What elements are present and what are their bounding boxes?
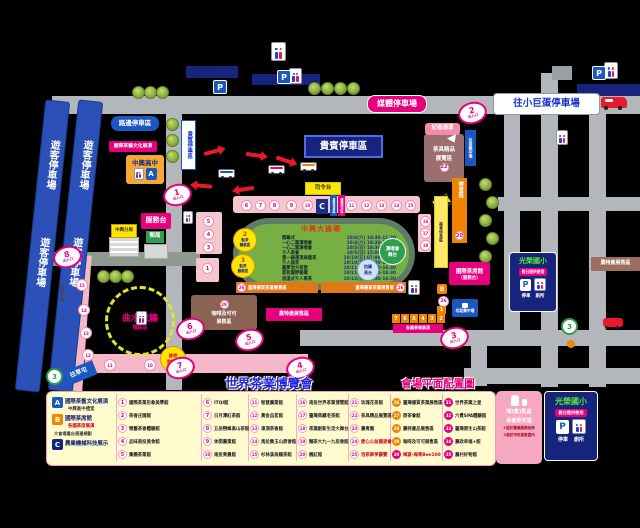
legend-item-16: 16南投世界茶業博覽館 — [298, 396, 349, 409]
legend-item-22: 22茶具精品展覽區 — [350, 409, 392, 422]
legend-abc-line: 農業機械科技展示 — [65, 439, 108, 450]
tree-icon — [156, 86, 169, 99]
tree-icon — [321, 82, 334, 95]
press-lane-label: 記者通道 — [425, 123, 460, 135]
map-subtitle: 會場平面配置圖 — [396, 379, 480, 391]
tree-icon — [334, 82, 347, 95]
legend-column: 21玫瑰花茶館22茶具精品展覽區23農青園24愛心公益園遊會25泡茶師爭霸賽 — [350, 396, 392, 461]
traffic-arrow-icon — [276, 156, 292, 165]
tree-icon — [486, 196, 499, 209]
legend-column: 31世界茶葉之星32六覺SPA體驗館33臺灣原生山茶館34農政幸福+館35農村好… — [444, 396, 486, 461]
legend-item-3: 3懷舊茶香體驗館 — [118, 422, 169, 435]
tea-strip-left: 26 臺灣優質茶葉展售區 — [236, 282, 318, 293]
legend-item-20: 20楓紅館 — [298, 448, 349, 461]
road-marker: 14 — [78, 304, 90, 316]
legend-a-marker: A — [146, 168, 157, 180]
legend-item-21: 21玫瑰花茶館 — [350, 396, 392, 409]
stand-c-badge: C — [316, 199, 328, 214]
toilet-icon — [408, 280, 420, 295]
road-marker: 12 — [82, 349, 94, 361]
police-label: 中興分局 — [111, 224, 137, 238]
vip-rest-tag: 貴賓休息區 — [330, 195, 337, 216]
garbage-sign: 垃圾集中場 — [452, 299, 478, 317]
toilet-icon — [134, 168, 144, 180]
legend-column: 26臺灣優質茶葉展售區27原茶會館28農特產品展售區29咖啡及可可展售區30梅宴… — [392, 396, 443, 461]
toilet-icon — [604, 62, 618, 79]
legend-item-7: 7日月潭紅茶館 — [203, 409, 249, 422]
car-icon — [601, 97, 627, 108]
legend-abc-line: 中興高中禮堂 — [68, 406, 94, 414]
legend-item-13: 13凍頂茶香館 — [250, 422, 296, 435]
tea-house-label: 國際茶席館 （服務台） — [449, 262, 490, 285]
route3-shield: 3 — [561, 318, 578, 335]
booth-3: 3 — [428, 314, 436, 323]
traffic-arrow-icon — [246, 152, 262, 158]
legend-item-6: 6ITQI館 — [203, 396, 249, 409]
booth-6: 6 — [401, 314, 409, 323]
traffic-arrow-icon — [204, 148, 220, 156]
service-desk-label: 服務台 — [141, 213, 171, 229]
legend-item-11: 11智慧農業館 — [250, 396, 296, 409]
to-dome-label: 往小巨蛋停車場 — [493, 93, 600, 115]
booth-5: 5 — [410, 314, 418, 323]
stand-number: 10 — [302, 200, 313, 211]
stand-number: 6 — [241, 200, 252, 211]
police-building — [109, 237, 139, 257]
toilet-icon — [534, 278, 546, 291]
gate-marker-5: 5出入口 — [233, 326, 266, 354]
legend-column: 11智慧農業館12黃金品茗館13凍頂茶香館14馬拉桑玉山原香館15杉林溪烏龍茶館 — [250, 396, 296, 461]
vip-parking-label: 貴賓停車區 — [304, 135, 383, 158]
visitor-parking-label: 遊客停車場 — [76, 139, 91, 190]
map-title: 世界茶業博覽會 — [214, 376, 324, 391]
legend-b-marker: B — [437, 284, 447, 294]
stand-number: 5 — [203, 216, 214, 227]
traffic-arrow-icon — [196, 183, 212, 188]
legend-item-25: 25泡茶師爭霸賽 — [350, 448, 392, 461]
legend-abc-line: 大會場看台周邊規劃 — [54, 430, 92, 438]
legend-column: 16南投世界茶業博覽館17臺灣典藏老茶館18茶葉創新生活大舞台19麵茶大九一九炭… — [298, 396, 349, 461]
tree-icon — [479, 178, 492, 191]
legend-item-23: 23農青園 — [350, 422, 392, 435]
toilet-icon — [556, 130, 568, 145]
visitor-parking-label: 遊客停車場 — [33, 237, 48, 288]
schedule-row: 浪漫式千人奉茶10/12(日) 15:30-16:30 — [282, 277, 396, 282]
toilet-icon — [136, 311, 147, 325]
legend-column: 1國際茶業形象美學館2茶香庄園館3懷舊茶香體驗館4品味南投美食館5集團茶業館 — [118, 396, 169, 461]
road — [552, 66, 572, 80]
legend-item-19: 19麵茶大九一九炭香館 — [298, 435, 349, 448]
stand-number: 4 — [203, 229, 214, 240]
tea-strip-right: 臺灣優質茶葉展售區 26 — [321, 282, 406, 293]
intl-tea-culture-label: 國際茶藝文化展演 — [109, 141, 157, 152]
road-marker: 15 — [76, 279, 88, 291]
road-marker: 11 — [104, 359, 116, 371]
tree-icon — [121, 270, 134, 283]
road — [300, 330, 640, 346]
parking-icon: P — [520, 279, 531, 291]
legend-item-2: 2茶香庄園館 — [118, 409, 169, 422]
legend-item-18: 18茶葉創新生活大舞台 — [298, 422, 349, 435]
tree-icon — [166, 134, 179, 147]
tree-icon — [166, 150, 179, 163]
legend-item-33: 33臺灣原生山茶館 — [444, 422, 486, 435]
traffic-dot — [567, 340, 575, 348]
legend-badge-C: C — [52, 439, 63, 450]
stand-number: 3 — [203, 242, 214, 253]
food-zone-strip: 美食區 20 — [452, 178, 467, 243]
tree-icon — [308, 82, 321, 95]
legend-item-26: 26臺灣優質茶葉展售區 — [392, 396, 443, 409]
stand-number: 16 — [420, 216, 431, 227]
farm-products-bar: 農特產展售區 — [266, 308, 322, 321]
legend-item-8: 8五岳巒峰高山茶館 — [203, 422, 249, 435]
road-marker: 10 — [144, 359, 156, 371]
stand-number: 18 — [420, 240, 431, 251]
shuttle-bus-icon — [268, 165, 285, 174]
farm-products-bar-right: 農特產展售區 — [591, 257, 640, 271]
traffic-arrow-icon — [238, 186, 254, 192]
legend-item-30: 30梅宴·梅青Bee100 — [392, 448, 443, 461]
legend-badge-B: B — [52, 414, 63, 425]
booth-7: 7 — [392, 314, 400, 323]
vip-parking-vertical-label: 貴賓停車區 — [181, 120, 196, 170]
tree-icon — [486, 232, 499, 245]
car-icon — [603, 318, 623, 327]
legend-item-31: 31世界茶葉之星 — [444, 396, 486, 409]
tree-icon — [479, 214, 492, 227]
media-tag: 媒體採訪區 — [338, 195, 345, 216]
media-parking-label: 媒體停車場 — [367, 95, 427, 113]
legend-item-15: 15杉林溪烏龍茶館 — [250, 448, 296, 461]
school-legend-panel: 光榮國小 假日提供使用 P 停車 廁所 — [544, 391, 598, 461]
toilet-icon — [183, 211, 193, 224]
parking-icon: P — [556, 420, 569, 434]
pedestrian-road — [85, 354, 308, 373]
visitor-parking-label: 遊客停車場 — [43, 139, 58, 190]
stand-number: 14 — [391, 200, 402, 211]
stand-number: 17 — [420, 228, 431, 239]
legend-column: 6ITQI館7日月潭紅茶館8五岳巒峰高山茶館9休閒農業館10南投青農館 — [203, 396, 249, 461]
shuttle-bus-icon — [300, 162, 317, 171]
tea-zone-2: 2 點茶 體驗區 — [233, 228, 257, 252]
school-parking-sign: 光榮國小 假日提供使用 P 停車 廁所 — [509, 252, 557, 312]
road-marker: 13 — [80, 327, 92, 339]
road — [498, 197, 640, 211]
tree-icon — [347, 82, 360, 95]
legend-item-1: 1國際茶業形象美學館 — [118, 396, 169, 409]
legend-item-27: 27原茶會館 — [392, 409, 443, 422]
legend-badge-A: A — [52, 397, 63, 408]
nursing-panel: 哺(集)乳室 長者更衣室 ①設於農業服務站旁 ②設於可可展售區內 — [496, 391, 542, 464]
booth-row: 765432 — [392, 314, 445, 323]
stand-number: 8 — [269, 200, 280, 211]
legend-item-4: 4品味南投美食館 — [118, 435, 169, 448]
road — [464, 368, 640, 384]
route3-shield: 3 — [46, 368, 63, 385]
legend-item-10: 10南投青農館 — [203, 448, 249, 461]
shelter — [186, 66, 238, 78]
stadium-schedule: 開幕式10/4(六) 10:30-11:30一心二葉演唱會10/4(六) 18:… — [282, 236, 396, 282]
legend-item-5: 5集團茶業館 — [118, 448, 169, 461]
teaware-exhibit-box: 茶具精品 展覽區 22 — [424, 134, 464, 182]
tree-icon — [166, 118, 179, 131]
photo-tower: 拍攝 高台 — [357, 259, 379, 281]
legend-item-29: 29咖啡及可可展售區 — [392, 435, 443, 448]
legend-item-14: 14馬拉桑玉山原香館 — [250, 435, 296, 448]
legend-item-34: 34農政幸福+館 — [444, 435, 486, 448]
post-office-building — [144, 244, 168, 259]
booth-row-label: 各國茶席展演 — [393, 324, 443, 333]
teaware-number: 22 — [440, 163, 449, 172]
stand-number: 15 — [405, 200, 416, 211]
school-a-box: 中興高中 A — [126, 155, 164, 184]
concert-stage: 演唱會 舞台 — [379, 238, 406, 265]
booth-1: 1 — [437, 306, 446, 314]
command-stage-label: 司令台 — [305, 182, 341, 195]
parking-icon: P — [592, 66, 606, 80]
garbage-vertical-sign: 垃圾集中場 — [465, 130, 476, 166]
booth-2: 2 — [437, 314, 445, 323]
booth-4: 4 — [419, 314, 427, 323]
legend-divider — [296, 394, 297, 461]
toilet-icon — [271, 42, 286, 61]
shuttle-bus-icon — [218, 169, 235, 178]
nursing-icon — [511, 395, 527, 406]
legend-divider — [116, 394, 117, 461]
legend-item-17: 17臺灣典藏老茶館 — [298, 409, 349, 422]
stand-number: 1 — [202, 263, 213, 274]
legend-item-32: 32六覺SPA體驗館 — [444, 409, 486, 422]
roadside-parking-label: 路邊停車區 — [111, 116, 159, 131]
toilet-icon — [572, 419, 586, 434]
tea-zone-3: 3 點茶 體驗區 — [231, 254, 255, 278]
post-office-label: 郵局 — [146, 231, 164, 243]
legend-item-9: 9休閒農業館 — [203, 435, 249, 448]
stand-number: 9 — [286, 200, 297, 211]
legend-item-24: 24愛心公益園遊會 — [350, 435, 392, 448]
parking-icon: P — [277, 70, 291, 84]
legend-item-28: 28農特產品展售區 — [392, 422, 443, 435]
stand-number: 13 — [376, 200, 387, 211]
legend-item-35: 35農村好物館 — [444, 448, 486, 461]
tea-expo-map: 遊客停車場 遊客停車場 遊客停車場 遊客停車場 媒體停車場 往小巨蛋停車場 路邊… — [0, 0, 640, 528]
road-name-label: 光華七路 — [56, 276, 66, 310]
legend-divider — [201, 394, 202, 461]
legend-item-12: 12黃金品茗館 — [250, 409, 296, 422]
stadium-name: 中興大操場 — [291, 225, 351, 234]
stand-number: 11 — [346, 200, 357, 211]
stand-number: 7 — [255, 200, 266, 211]
stand-number: 12 — [361, 200, 372, 211]
food-rest-strip: 美食休息區 — [434, 196, 448, 268]
parking-icon: P — [213, 80, 227, 94]
